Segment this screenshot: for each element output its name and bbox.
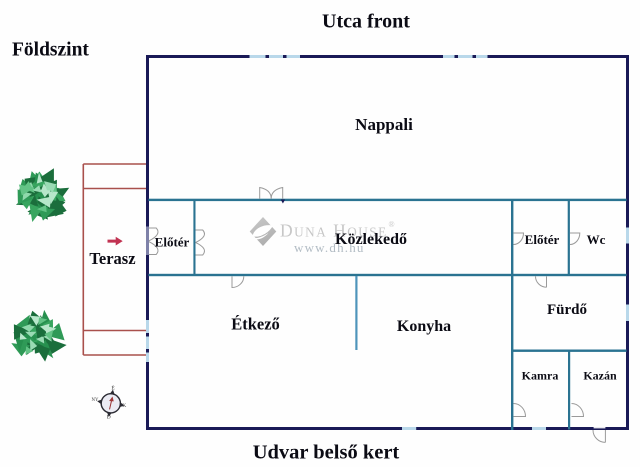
svg-text:D: D	[107, 415, 111, 421]
svg-text:K: K	[122, 403, 126, 409]
svg-text:NY: NY	[92, 398, 99, 403]
svg-text:Utca front: Utca front	[322, 11, 410, 33]
svg-text:Nappali: Nappali	[355, 115, 413, 134]
svg-text:Kazán: Kazán	[583, 369, 617, 383]
svg-text:Előtér: Előtér	[525, 232, 560, 247]
svg-text:Étkező: Étkező	[231, 315, 280, 334]
svg-text:Előtér: Előtér	[155, 235, 190, 250]
svg-text:Fürdő: Fürdő	[547, 302, 588, 318]
svg-text:®: ®	[389, 220, 395, 229]
svg-text:Terasz: Terasz	[89, 249, 135, 268]
svg-text:Kamra: Kamra	[522, 369, 559, 383]
svg-text:Wc: Wc	[587, 232, 606, 247]
svg-text:Konyha: Konyha	[397, 318, 451, 335]
svg-text:Közlekedő: Közlekedő	[335, 231, 407, 248]
svg-text:Udvar belső kert: Udvar belső kert	[253, 442, 400, 464]
svg-text:Földszint: Földszint	[12, 40, 89, 61]
